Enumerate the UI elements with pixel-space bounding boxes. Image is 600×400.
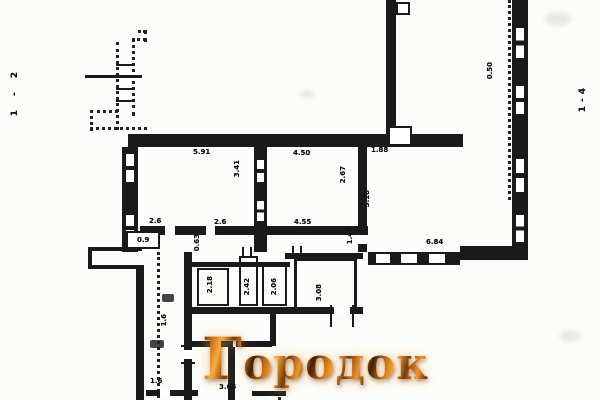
door-block-band-1 [374,254,392,263]
dim-room3-depth: 5.18 [363,190,371,207]
dashed-notch-horizontal [138,30,146,33]
dim-small-room-b: 2.42 [243,278,251,295]
door-opening-bottom [158,390,172,396]
scan-noise [560,330,580,342]
scan-noise [545,12,571,26]
pilaster-top [396,2,410,15]
stair-rung [116,64,135,66]
door-swing-tick [242,247,244,258]
door-block-band-3 [427,254,447,263]
dim-passage-063: 0.63 [193,234,201,251]
pilaster-mid [388,126,412,146]
door-opening-corridor-b [204,226,217,235]
scan-noise [300,90,314,98]
dashed-stair-line-left [116,42,119,130]
door-block-band-2 [399,254,419,263]
dim-corridor-455: 4.55 [294,218,311,226]
door-tick [352,305,354,327]
section-mark-left: 1-2 [10,58,20,116]
door-tick [330,305,332,327]
window-right-3 [514,157,526,194]
door-swing-tick [250,247,252,258]
dim-small-room-d: 3.08 [315,284,323,301]
dim-strip-16b: 1.6 [150,377,162,385]
dim-wall-050: 0.50 [486,62,494,79]
dim-opening-09: 0.9 [137,236,149,244]
scan-mark [162,294,174,302]
window-right-2 [514,84,526,116]
section-mark-right: 1-4 [578,84,588,112]
dim-opening-147: 1.47 [346,227,354,244]
stair-rung [116,100,135,102]
dim-room1-width: 5.91 [193,148,210,156]
stair-rung [116,88,135,90]
room-outline-d [294,258,357,310]
dim-room2-depth: 2.67 [339,166,347,183]
wall-top-horizontal [128,134,463,147]
door-block-room1-upper [255,158,266,184]
wall-bottom-left [146,390,198,396]
dashed-porch-bottom [90,127,147,130]
wall-top-vertical [386,0,396,136]
window-right-1 [514,26,526,60]
door-opening-corridor-wall [184,348,192,361]
wall-left-lower [136,267,144,400]
dim-strip-16a: 1.6 [160,314,168,326]
door-block-room1-lower [255,199,266,223]
door-tick [181,362,195,364]
dim-room1-depth: 3.41 [233,160,241,177]
dim-small-room-a: 2.18 [206,276,214,293]
dim-room2-width: 4.50 [293,149,310,157]
window-right-4 [514,213,526,244]
scan-mark [150,340,164,348]
dim-small-room-c: 2.06 [270,278,278,295]
dim-corridor-26a: 2.6 [149,217,161,225]
dim-gap-188: 1.88 [371,146,388,154]
door-opening-corridor-a [163,226,177,235]
watermark-gorodok: Городок [202,328,429,392]
dim-corridor-26b: 2.6 [214,218,226,226]
dashed-right-edge [508,0,511,200]
wall-corridor-vertical [184,252,192,400]
stair-cross-line [85,75,142,78]
wall-lower-right [460,246,528,260]
dashed-porch-top [90,110,118,113]
door-opening-roomd [332,307,352,314]
floor-plan-scan: 5.91 3.41 4.50 1.88 2.67 5.18 0.50 2.6 2… [0,0,600,400]
window-left-upper [124,152,136,184]
dim-room3-width: 6.84 [426,238,443,246]
